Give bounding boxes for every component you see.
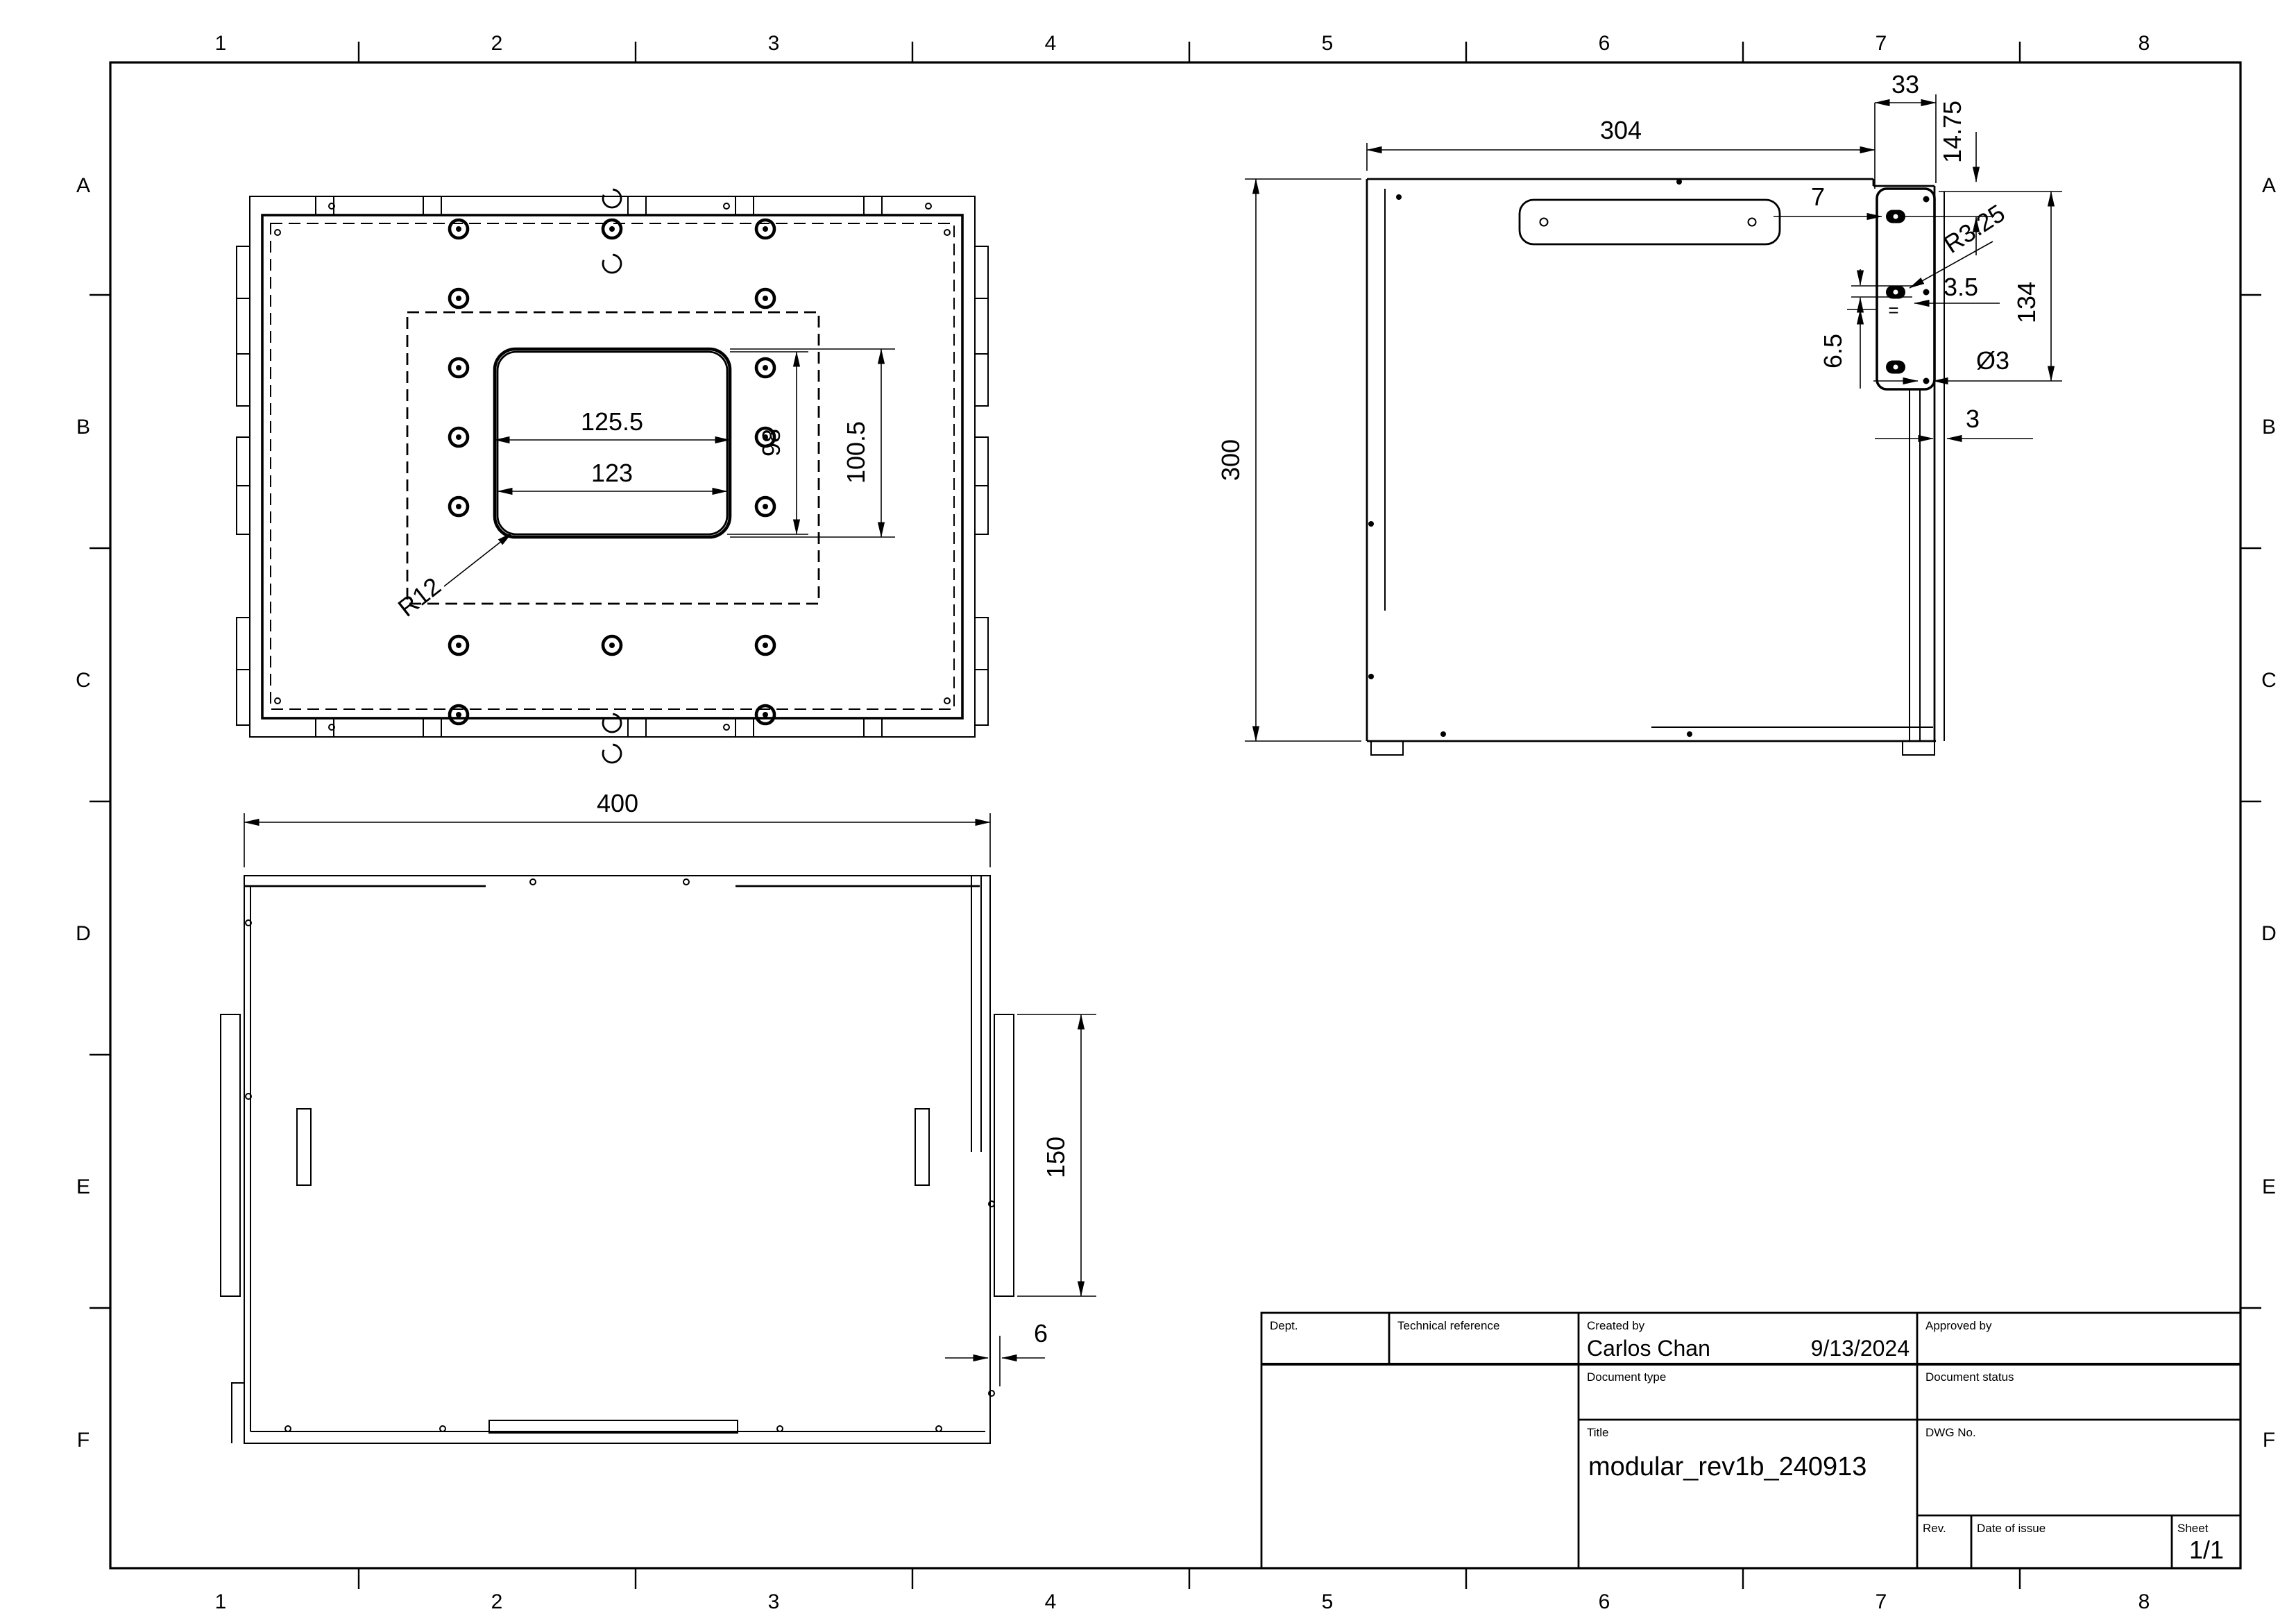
extension-line bbox=[1245, 179, 1361, 741]
equal-spacing-symbol: = bbox=[1888, 300, 1898, 321]
dimension-text: 400 bbox=[597, 789, 638, 817]
drawing-border bbox=[110, 62, 2240, 1568]
plate-hole bbox=[1749, 219, 1756, 226]
zone-label-col: 7 bbox=[1876, 1590, 1887, 1613]
dimension-text: 6 bbox=[1034, 1319, 1048, 1348]
dimension-text: Ø3 bbox=[1976, 346, 2009, 375]
center-cutout-outer bbox=[495, 349, 730, 537]
dimension-text: R3.25 bbox=[1939, 198, 2010, 259]
zone-label-col: 6 bbox=[1599, 32, 1610, 55]
top-view: 125.5 123 98 100.5 R12 bbox=[237, 189, 988, 763]
zone-label-row: F bbox=[77, 1429, 90, 1452]
dimension-text: 150 bbox=[1041, 1137, 1070, 1178]
side-view: 304 33 300 14.75 7 R3.25 3.5 = 6.5 bbox=[1216, 70, 2062, 755]
zone-label-row: D bbox=[76, 922, 91, 945]
dimension-text: 6.5 bbox=[1819, 334, 1847, 368]
zone-label-col: 4 bbox=[1045, 32, 1057, 55]
sheet-value: 1/1 bbox=[2189, 1536, 2224, 1564]
dimension-text: 134 bbox=[2012, 282, 2041, 323]
panel-outline bbox=[244, 876, 990, 1443]
bracket-tail-lines bbox=[1910, 389, 1920, 741]
hidden-pocket bbox=[407, 312, 819, 604]
corner-step bbox=[232, 1383, 244, 1443]
dimension-text: 98 bbox=[757, 429, 785, 457]
edge-holes bbox=[1368, 179, 1692, 737]
approved-by-label: Approved by bbox=[1925, 1319, 1992, 1332]
left-flange bbox=[221, 1014, 240, 1296]
title-block: Dept. Technical reference Created by App… bbox=[1261, 1313, 2240, 1568]
zone-label-row: A bbox=[76, 174, 90, 197]
dimension-text: 300 bbox=[1216, 439, 1245, 481]
zone-label-col: 3 bbox=[768, 32, 780, 55]
created-by-value: Carlos Chan bbox=[1587, 1336, 1710, 1361]
zone-label-row: E bbox=[76, 1175, 90, 1198]
created-date-value: 9/13/2024 bbox=[1811, 1336, 1910, 1361]
dimension-text: 123 bbox=[591, 459, 633, 487]
dimension-text: 3 bbox=[1966, 405, 1980, 433]
dimension-text: 33 bbox=[1891, 70, 1919, 99]
zone-label-col: 4 bbox=[1045, 1590, 1057, 1613]
zone-label-row: F bbox=[2263, 1429, 2275, 1452]
title-block-border bbox=[1261, 1313, 2240, 1568]
radius-leader bbox=[444, 533, 512, 586]
center-cutout-inner bbox=[498, 352, 727, 534]
washer-holes-right bbox=[756, 220, 774, 724]
document-type-label: Document type bbox=[1587, 1370, 1666, 1384]
document-status-label: Document status bbox=[1925, 1370, 2014, 1384]
dwg-no-label: DWG No. bbox=[1925, 1426, 1976, 1439]
slot bbox=[915, 1109, 929, 1185]
engineering-drawing: 1 2 3 4 5 6 7 8 1 2 3 4 5 6 7 8 A B C D … bbox=[0, 0, 2296, 1623]
extension-line bbox=[1367, 94, 1936, 189]
zone-tick bbox=[359, 42, 2020, 62]
right-flange bbox=[994, 1014, 1014, 1296]
zone-label-row: C bbox=[76, 669, 91, 692]
dimension-text: 7 bbox=[1811, 182, 1825, 211]
zone-label-col: 5 bbox=[1322, 32, 1334, 55]
foot bbox=[1371, 741, 1403, 755]
dimension-text: 125.5 bbox=[581, 407, 643, 436]
created-by-label: Created by bbox=[1587, 1319, 1645, 1332]
zone-label-col: 8 bbox=[2138, 32, 2150, 55]
slot bbox=[297, 1109, 311, 1185]
extension-line bbox=[244, 813, 990, 867]
technical-reference-label: Technical reference bbox=[1397, 1319, 1499, 1332]
zone-label-col: 1 bbox=[215, 32, 227, 55]
date-of-issue-label: Date of issue bbox=[1977, 1522, 2046, 1535]
rail-tab-ticks bbox=[316, 196, 882, 215]
dept-label: Dept. bbox=[1270, 1319, 1298, 1332]
right-inner-edge bbox=[971, 876, 981, 1152]
rev-label: Rev. bbox=[1923, 1522, 1946, 1535]
zone-label-row: C bbox=[2261, 669, 2277, 692]
zone-label-col: 2 bbox=[491, 32, 503, 55]
washer-holes-left bbox=[450, 220, 468, 724]
dimension-text: 100.5 bbox=[842, 421, 870, 484]
bottom-view-dimensions: 400 150 6 bbox=[244, 789, 1096, 1386]
zone-label-row: A bbox=[2262, 174, 2276, 197]
dimension-text: 3.5 bbox=[1944, 273, 1978, 301]
zone-label-col: 3 bbox=[768, 1590, 780, 1613]
rail-tab-ticks bbox=[316, 718, 882, 737]
title-label: Title bbox=[1587, 1426, 1609, 1439]
zone-label-col: 7 bbox=[1876, 32, 1887, 55]
pilot-holes bbox=[246, 879, 994, 1431]
dimension-text: 14.75 bbox=[1938, 101, 1966, 163]
dimension-text: 304 bbox=[1600, 116, 1642, 144]
zone-label-row: B bbox=[2262, 416, 2276, 439]
zone-label-col: 1 bbox=[215, 1590, 227, 1613]
top-edge bbox=[1367, 179, 1934, 186]
foot bbox=[1903, 741, 1934, 755]
zone-tick bbox=[90, 295, 110, 1308]
zone-label-row: D bbox=[2261, 922, 2277, 945]
sheet-label: Sheet bbox=[2177, 1522, 2209, 1535]
zone-label-col: 8 bbox=[2138, 1590, 2150, 1613]
bracket-pin-holes bbox=[1923, 196, 1930, 384]
zone-tick bbox=[359, 1568, 2020, 1589]
bracket-slots bbox=[1886, 210, 1905, 374]
zone-label-col: 2 bbox=[491, 1590, 503, 1613]
zone-label-col: 5 bbox=[1322, 1590, 1334, 1613]
dimension-text: R12 bbox=[393, 572, 446, 622]
zone-tick bbox=[2240, 295, 2261, 1308]
mounting-bracket bbox=[1877, 189, 1934, 389]
drawing-title: modular_rev1b_240913 bbox=[1588, 1452, 1866, 1481]
zone-label-row: E bbox=[2262, 1175, 2276, 1198]
top-slot-plate bbox=[1520, 200, 1780, 244]
title-block-dividers bbox=[1389, 1313, 2172, 1568]
bottom-view: 400 150 6 bbox=[221, 789, 1096, 1443]
plate-hole bbox=[1540, 219, 1548, 226]
zone-label-row: B bbox=[76, 416, 90, 439]
zone-label-col: 6 bbox=[1599, 1590, 1610, 1613]
